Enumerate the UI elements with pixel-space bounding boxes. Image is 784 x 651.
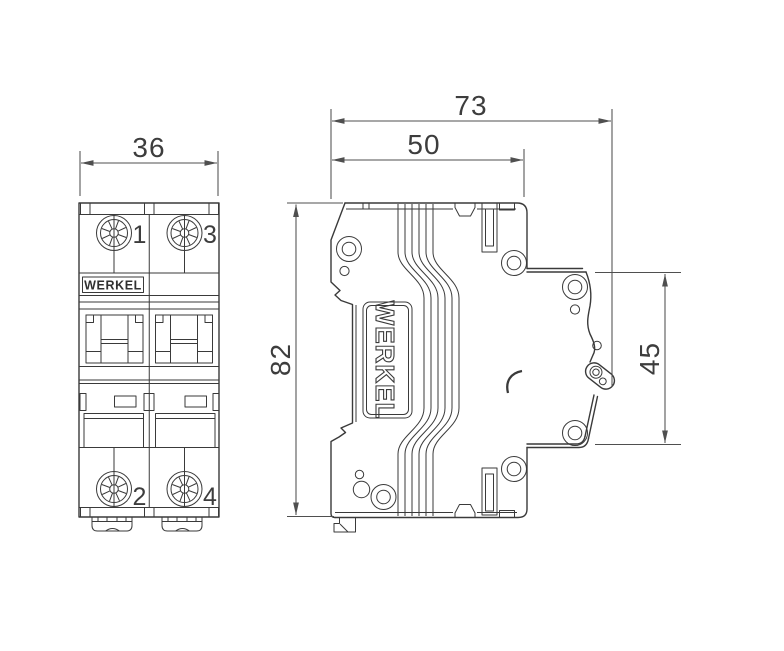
housing-screw-icon [371,485,396,510]
dim-value-73: 73 [454,90,487,121]
bottom-tab [500,511,515,518]
dim-value-45: 45 [634,342,665,375]
side-view: WERKEL [331,203,618,532]
top-tab [81,203,91,215]
terminal-slot-top [482,203,497,252]
rear-terminal-screw-icon [563,275,588,300]
terminal-number-1: 1 [133,221,147,249]
dimension-rear-height: 45 [595,273,681,445]
housing-ribs [398,204,459,516]
terminal-clip-right [162,517,202,531]
rear-terminal-screw-icon [563,421,588,446]
dimension-front-width: 36 [80,132,218,196]
housing-screw-icon [337,237,362,262]
side-bottom-edge [335,448,527,518]
window-bracket [80,394,86,411]
brand-label-front: WERKEL [84,279,142,293]
dim-value-50: 50 [407,129,440,160]
indicator-window [115,396,137,407]
top-notch [455,203,475,216]
brand-plate: WERKEL [83,277,144,293]
indicator-window [185,396,207,407]
dim-value-36: 36 [132,132,165,163]
side-top-edge [345,203,527,269]
technical-drawing: 1 3 2 4 WERKEL [0,0,784,651]
housing-screw-icon [502,457,527,482]
terminal-number-3: 3 [203,221,217,249]
bottom-tab [81,508,91,518]
brand-plate-side: WERKEL [363,301,412,420]
top-tab [209,203,219,215]
drawing-canvas: 1 3 2 4 WERKEL [0,0,784,651]
top-tab [145,203,155,215]
side-left-edge [331,203,353,518]
rear-profile-lower [585,395,598,439]
terminal-number-2: 2 [133,483,147,511]
mould-mark [507,371,522,393]
toggle-switch-left[interactable] [86,315,143,363]
terminal-slot-bottom [482,468,497,515]
bottom-notch [455,505,475,518]
toggle-switch-right[interactable] [156,315,213,363]
terminal-number-4: 4 [203,483,217,511]
front-view: 1 3 2 4 WERKEL [79,203,219,531]
dim-value-82: 82 [265,343,296,376]
window-bracket [213,394,219,411]
mounting-foot [334,518,356,533]
housing-screw-icon [502,251,527,276]
brand-label-side: WERKEL [370,301,400,420]
dimension-body-depth: 50 [332,129,524,197]
terminal-clip-left [92,517,132,531]
